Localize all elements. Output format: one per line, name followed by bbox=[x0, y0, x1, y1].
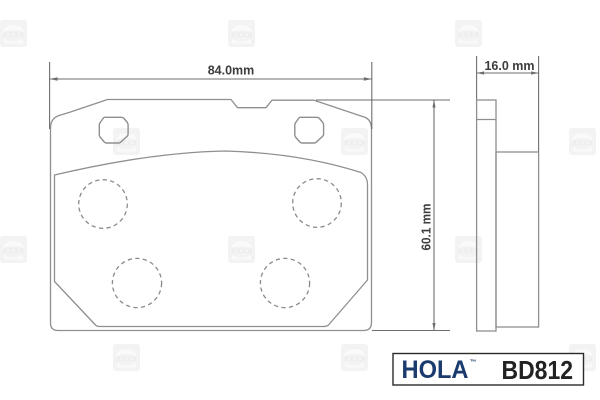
svg-text:16.0 mm: 16.0 mm bbox=[484, 59, 534, 73]
svg-text:™: ™ bbox=[470, 359, 477, 366]
svg-text:HOLA: HOLA bbox=[402, 356, 469, 384]
svg-text:BD812: BD812 bbox=[502, 355, 574, 385]
svg-text:60.1 mm: 60.1 mm bbox=[419, 204, 434, 251]
svg-text:84.0mm: 84.0mm bbox=[208, 64, 255, 78]
